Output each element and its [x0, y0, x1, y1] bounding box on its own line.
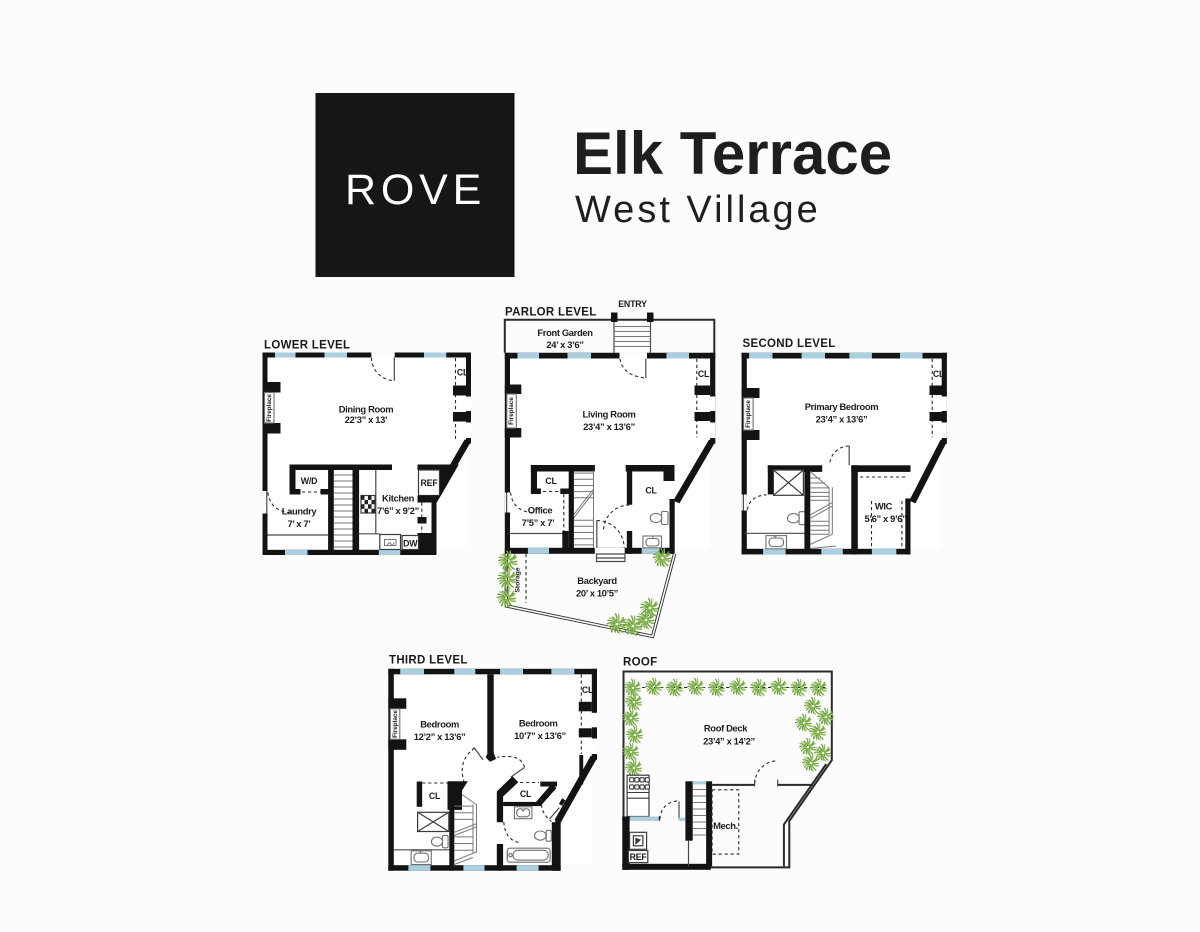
svg-text:Fireplace: Fireplace: [508, 397, 515, 425]
svg-text:LOWER LEVEL: LOWER LEVEL: [264, 340, 350, 352]
svg-text:20’ x 10’5”: 20’ x 10’5”: [576, 588, 618, 599]
svg-text:REF: REF: [421, 478, 439, 488]
svg-text:THIRD LEVEL: THIRD LEVEL: [389, 655, 468, 667]
svg-text:CL: CL: [698, 369, 710, 379]
svg-text:SECOND LEVEL: SECOND LEVEL: [743, 338, 836, 350]
svg-text:5’6” x 9’6”: 5’6” x 9’6”: [864, 513, 906, 524]
svg-text:10’7” x 13’6”: 10’7” x 13’6”: [514, 730, 566, 741]
svg-text:7’ x 7’: 7’ x 7’: [287, 518, 310, 529]
svg-text:CL: CL: [645, 486, 657, 496]
svg-text:7’5” x 7’: 7’5” x 7’: [522, 517, 555, 528]
svg-text:23’4” x 13’6”: 23’4” x 13’6”: [583, 421, 635, 432]
svg-text:W/D: W/D: [301, 476, 318, 486]
svg-text:Fireplace: Fireplace: [392, 710, 399, 738]
svg-text:ENTRY: ENTRY: [618, 299, 647, 309]
svg-text:22’3” x 13’: 22’3” x 13’: [345, 414, 388, 425]
svg-text:Front Garden: Front Garden: [537, 327, 593, 338]
svg-text:Primary Bedroom: Primary Bedroom: [805, 401, 878, 412]
svg-text:CL: CL: [545, 476, 557, 486]
svg-text:Roof Deck: Roof Deck: [704, 723, 748, 734]
svg-text:Office: Office: [528, 505, 553, 516]
svg-text:24’ x 3’6”: 24’ x 3’6”: [546, 339, 583, 350]
svg-text:ROVE: ROVE: [345, 166, 486, 214]
svg-text:Bedroom: Bedroom: [420, 719, 459, 730]
svg-text:CL: CL: [582, 685, 594, 695]
svg-text:Dining Room: Dining Room: [339, 404, 393, 415]
svg-text:REF: REF: [630, 852, 648, 862]
svg-text:Living Room: Living Room: [583, 409, 636, 420]
svg-text:CL: CL: [457, 368, 469, 378]
svg-text:Fireplace: Fireplace: [266, 394, 273, 422]
svg-text:PARLOR LEVEL: PARLOR LEVEL: [505, 307, 597, 319]
svg-text:CL: CL: [520, 789, 532, 799]
svg-text:Elk Terrace: Elk Terrace: [573, 120, 892, 187]
svg-text:12’2” x 13’6”: 12’2” x 13’6”: [414, 731, 466, 742]
svg-text:23’4” x 13’6”: 23’4” x 13’6”: [816, 414, 868, 425]
svg-text:Mech.: Mech.: [713, 820, 738, 831]
svg-text:23’4” x 14’2”: 23’4” x 14’2”: [703, 736, 755, 747]
svg-text:CL: CL: [429, 791, 441, 801]
svg-text:ROOF: ROOF: [623, 657, 657, 669]
svg-text:CL: CL: [933, 369, 945, 379]
svg-text:Laundry: Laundry: [282, 506, 318, 517]
svg-text:Bedroom: Bedroom: [519, 718, 558, 729]
svg-text:West Village: West Village: [575, 189, 821, 231]
svg-text:Kitchen: Kitchen: [382, 493, 415, 504]
svg-text:7’6” x 9’2”: 7’6” x 9’2”: [377, 505, 419, 516]
svg-text:WIC: WIC: [875, 501, 893, 512]
svg-text:Backyard: Backyard: [577, 575, 617, 586]
svg-text:DW: DW: [403, 539, 418, 549]
svg-text:Fireplace: Fireplace: [745, 400, 752, 428]
